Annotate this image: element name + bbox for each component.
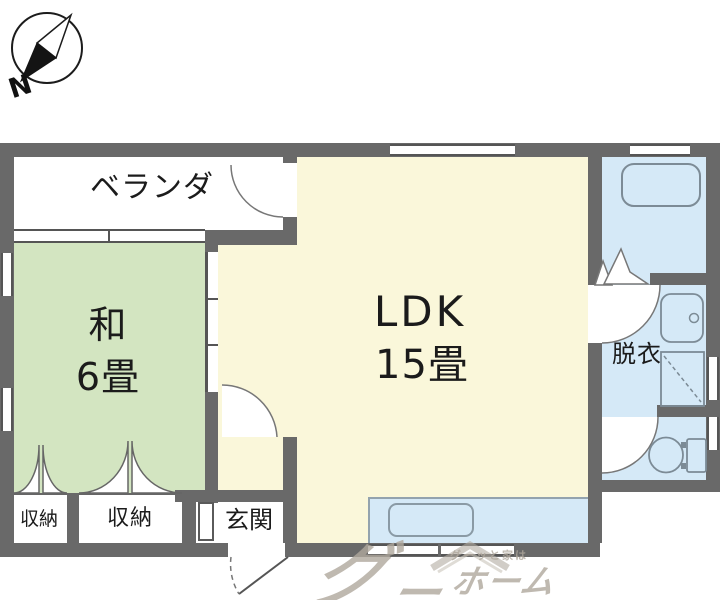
window-top-bath	[630, 144, 690, 156]
window-left-lower	[1, 388, 13, 431]
genkan-shoe-cabinet	[198, 502, 214, 541]
washitsu-name-label: 和	[58, 306, 158, 344]
wall-genkan-right	[283, 437, 297, 557]
wall-closet-divider	[67, 493, 79, 543]
compass-icon: N	[5, 13, 82, 105]
wall-veranda-bottom-right	[205, 230, 297, 245]
watermark-brand-dash: ー	[384, 570, 448, 600]
sliding-door-divider	[208, 298, 218, 300]
watermark-tagline: グーッと家は	[450, 550, 528, 561]
compass-north-label: N	[5, 69, 36, 105]
genkan-entrance-opening	[228, 543, 285, 557]
datsui-label: 脱衣	[597, 342, 677, 366]
watermark-brand-home: ホーム	[448, 565, 559, 598]
entrance-door-swing-icon	[231, 557, 288, 594]
window-left-upper	[1, 253, 13, 296]
sliding-door-washitsu-ldk	[205, 252, 218, 392]
floor-plan: N	[0, 0, 727, 600]
wall-top	[0, 143, 720, 157]
genkan-label: 玄関	[216, 508, 282, 532]
washitsu-size-label: 6畳	[58, 358, 158, 396]
toilet-area	[602, 417, 706, 480]
ldk-name-label: LDK	[340, 291, 500, 333]
window-sash-divider	[108, 231, 110, 241]
closet-right-label: 収納	[90, 508, 170, 530]
kitchen-counter	[368, 497, 588, 543]
wall-datsui-toilet	[657, 405, 706, 417]
sliding-door-divider	[208, 344, 218, 346]
bathroom-area	[602, 157, 706, 285]
ldk-area-top	[297, 157, 588, 243]
wall-left	[0, 143, 14, 557]
wall-bath-datsui	[650, 273, 706, 285]
datsui-door-opening	[588, 285, 602, 343]
window-right-toilet	[707, 417, 719, 450]
wall-rightcol-bottom	[588, 480, 720, 492]
closet-left-label: 収納	[10, 510, 68, 529]
window-right-datsui	[707, 357, 719, 400]
window-top-ldk	[390, 144, 515, 156]
veranda-label: ベランダ	[72, 173, 232, 203]
ldk-size-label: 15畳	[337, 345, 507, 385]
wall-closet-right	[182, 493, 196, 543]
window-washitsu-veranda	[14, 229, 205, 243]
veranda-door-opening	[283, 163, 297, 217]
